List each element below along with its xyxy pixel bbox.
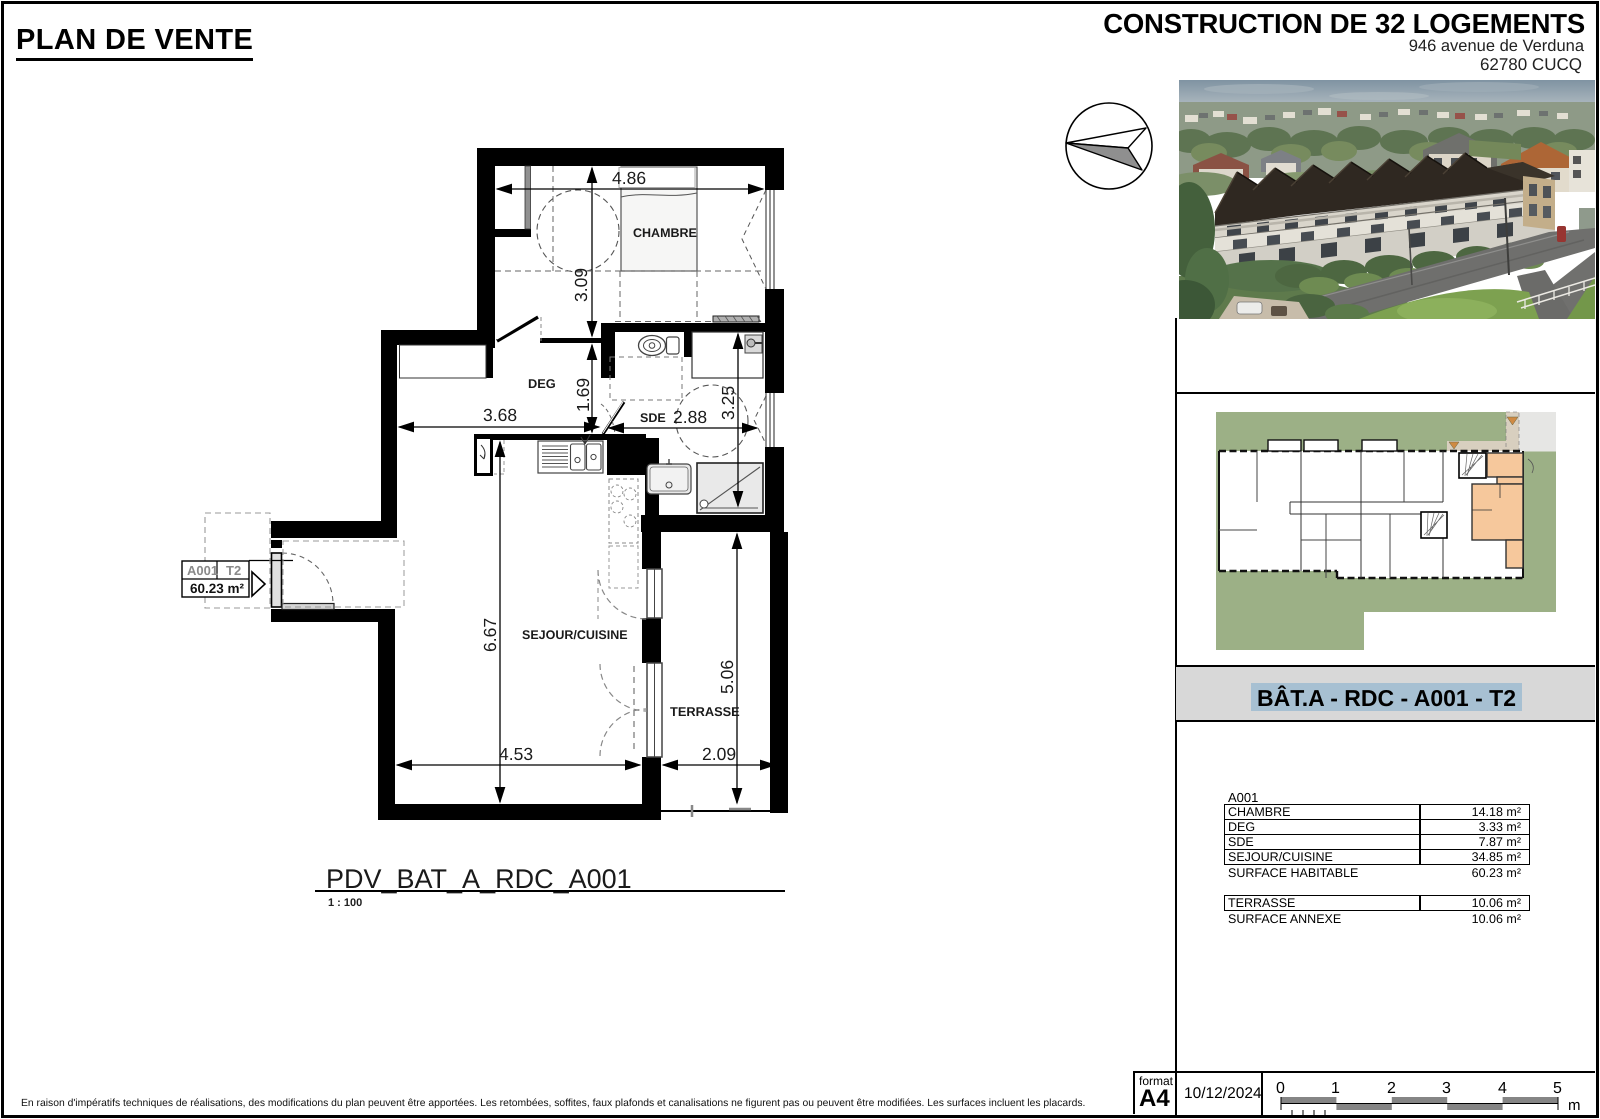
svg-text:5: 5 bbox=[1553, 1080, 1562, 1097]
svg-text:A001: A001 bbox=[187, 563, 218, 578]
svg-text:0: 0 bbox=[1276, 1080, 1285, 1097]
svg-text:2.88: 2.88 bbox=[673, 407, 707, 427]
svg-text:4.53: 4.53 bbox=[499, 744, 533, 764]
svg-text:T2: T2 bbox=[226, 563, 241, 578]
svg-text:3.25: 3.25 bbox=[718, 386, 738, 420]
svg-text:4.86: 4.86 bbox=[612, 168, 646, 188]
svg-text:1.69: 1.69 bbox=[573, 378, 593, 412]
svg-text:3: 3 bbox=[1442, 1080, 1451, 1097]
svg-text:3.68: 3.68 bbox=[483, 405, 517, 425]
svg-text:m: m bbox=[1568, 1097, 1581, 1114]
svg-text:1: 1 bbox=[1331, 1080, 1340, 1097]
svg-text:SEJOUR/CUISINE: SEJOUR/CUISINE bbox=[522, 628, 628, 642]
svg-text:3.09: 3.09 bbox=[571, 268, 591, 302]
svg-text:2: 2 bbox=[1387, 1080, 1396, 1097]
svg-text:SDE: SDE bbox=[640, 411, 666, 425]
svg-text:DEG: DEG bbox=[528, 376, 556, 391]
svg-text:CHAMBRE: CHAMBRE bbox=[633, 226, 697, 240]
svg-text:60.23 m²: 60.23 m² bbox=[190, 581, 245, 596]
svg-text:TERRASSE: TERRASSE bbox=[670, 704, 740, 719]
svg-text:4: 4 bbox=[1498, 1080, 1507, 1097]
svg-text:6.67: 6.67 bbox=[480, 618, 500, 652]
svg-text:5.06: 5.06 bbox=[717, 660, 737, 694]
svg-text:2.09: 2.09 bbox=[702, 744, 736, 764]
